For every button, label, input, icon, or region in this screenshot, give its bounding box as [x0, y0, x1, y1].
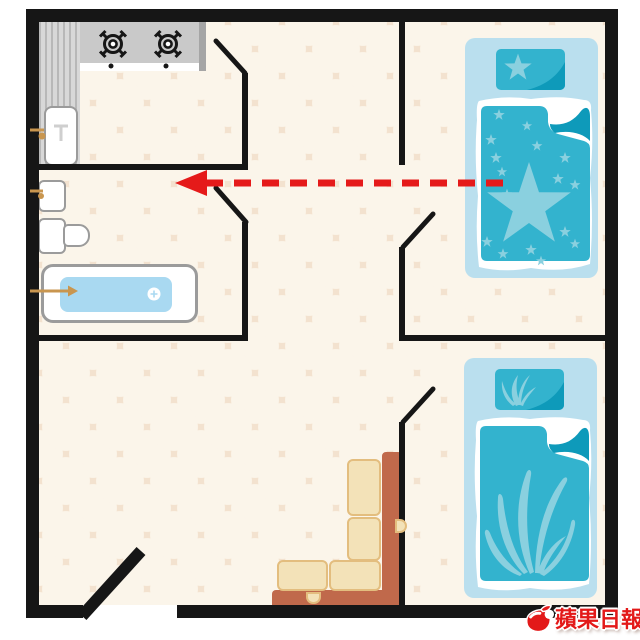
wall-bedroom-top-left-lower: [399, 247, 405, 341]
wall-left: [26, 9, 39, 618]
toilet-tank: [38, 218, 66, 254]
wall-bathroom-bottom: [39, 335, 248, 341]
wall-bedroom-top-left-upper: [399, 22, 405, 165]
pillow: [495, 369, 564, 410]
bathtub-water: [60, 277, 172, 312]
bed-leaf-bedding: [464, 358, 597, 598]
kitchen-stove-counter: [80, 22, 199, 63]
sofa-cushion: [347, 459, 381, 516]
wall-right: [605, 9, 618, 618]
toilet-bowl: [63, 224, 90, 247]
brand-watermark: 蘋果日報: [524, 602, 640, 634]
kitchen-counter-front-strip: [80, 63, 199, 71]
wall-bathroom-right: [242, 222, 248, 341]
wall-bottom-left-segment: [26, 605, 83, 618]
wall-top: [26, 9, 618, 22]
wall-kitchen-right: [242, 73, 248, 168]
floorplan-canvas: 蘋果日報: [0, 0, 640, 640]
brand-text: 蘋果日報: [555, 602, 640, 634]
kitchen-counter-edge: [199, 22, 206, 71]
wall-bedroom-bottom-left: [399, 422, 405, 605]
bed-star-bedding: [465, 38, 598, 278]
sofa-cushion: [329, 560, 381, 591]
sofa-cushion: [347, 517, 381, 561]
wall-kitchen-bathroom-divider: [39, 164, 248, 170]
apple-icon: [524, 602, 554, 634]
sofa-cushion: [277, 560, 328, 591]
wall-bedrooms-divider: [399, 335, 618, 341]
wash-basin: [38, 180, 66, 212]
kitchen-sink: [44, 106, 78, 166]
pillow: [496, 49, 565, 90]
